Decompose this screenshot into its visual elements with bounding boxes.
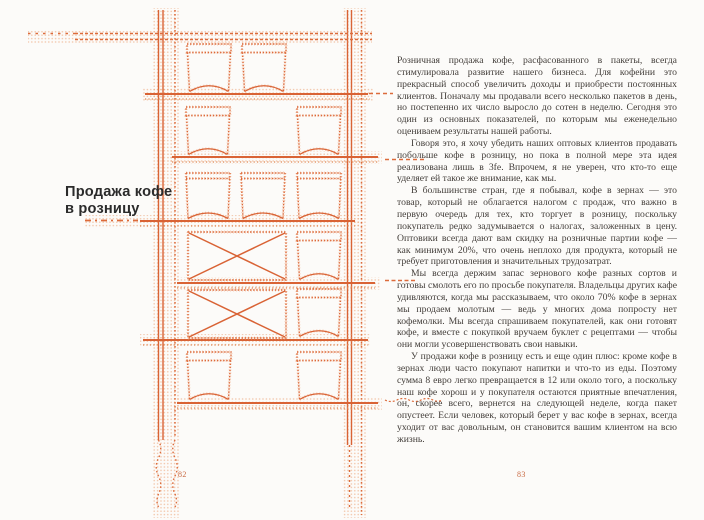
- coffee-bag-icon: [297, 107, 341, 155]
- section-heading: Продажа кофе в розницу: [65, 184, 172, 218]
- body-text: Розничная продажа кофе, расфасованного в…: [397, 55, 677, 446]
- coffee-bag-icon: [297, 232, 341, 280]
- paragraph: В большинстве стран, где я побывал, кофе…: [397, 185, 677, 268]
- shelf-6: [140, 334, 370, 347]
- crossed-crate-icon: [188, 232, 286, 280]
- coffee-tin-icon: [241, 173, 285, 219]
- paragraph: У продажи кофе в розницу есть и еще один…: [397, 351, 677, 446]
- heading-line-1: Продажа кофе: [65, 184, 172, 201]
- shelf-3: [168, 151, 426, 164]
- coffee-tin-icon: [297, 173, 341, 219]
- coffee-bag-icon: [297, 352, 341, 400]
- book-spread: Продажа кофе в розницу 82 Розничная прод…: [0, 0, 704, 520]
- paragraph: Мы всегда держим запас зернового кофе ра…: [397, 268, 677, 351]
- coffee-bag-icon: [242, 44, 286, 92]
- shelf-2: [142, 88, 393, 102]
- paragraph: Розничная продажа кофе, расфасованного в…: [397, 55, 677, 138]
- right-shelf-post: [342, 8, 367, 518]
- left-shelf-post: [152, 8, 180, 518]
- shelf-5: [174, 277, 415, 290]
- paragraph: Говоря это, я хочу убедить наших оптовых…: [397, 138, 677, 185]
- heading-line-2: в розницу: [65, 201, 172, 218]
- crossed-crate-icon: [188, 290, 286, 338]
- coffee-bag-icon: [187, 44, 231, 92]
- coffee-bag-icon: [187, 352, 231, 400]
- page-number-left: 82: [178, 470, 187, 479]
- coffee-bag-icon: [297, 289, 341, 337]
- page-number-right: 83: [517, 470, 526, 479]
- coffee-tin-icon: [186, 173, 230, 219]
- coffee-bag-icon: [186, 107, 230, 155]
- shelf-top: [28, 30, 372, 43]
